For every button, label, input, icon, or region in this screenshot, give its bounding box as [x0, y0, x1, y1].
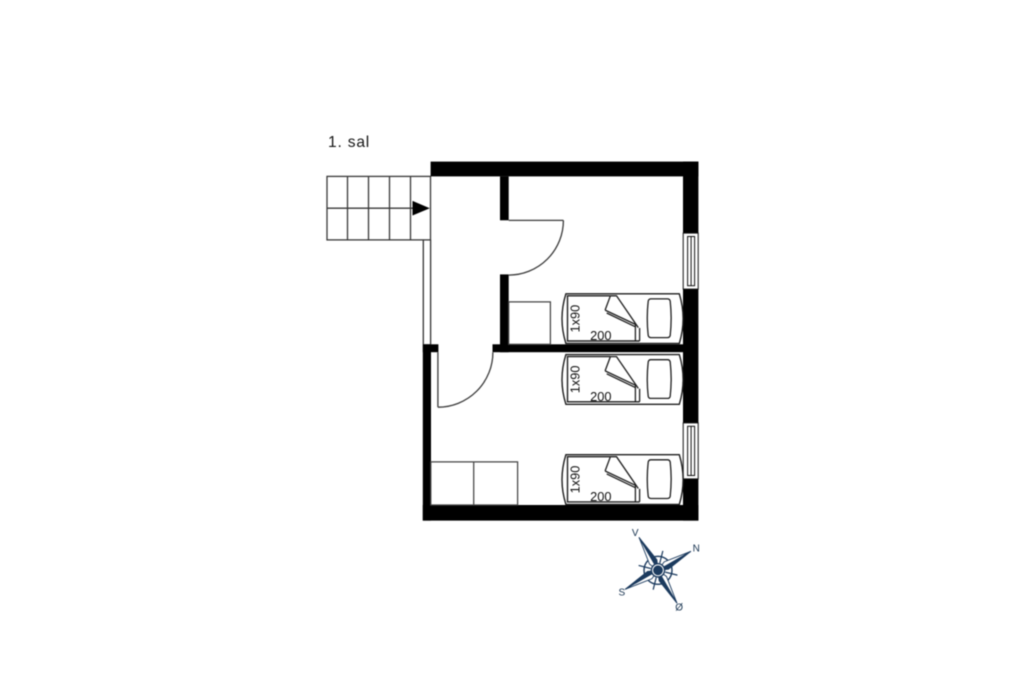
svg-text:S: S [618, 588, 625, 599]
svg-text:1. sal: 1. sal [328, 134, 370, 151]
svg-text:N: N [693, 544, 700, 555]
svg-text:V: V [632, 528, 639, 539]
svg-text:Ø: Ø [675, 603, 683, 614]
